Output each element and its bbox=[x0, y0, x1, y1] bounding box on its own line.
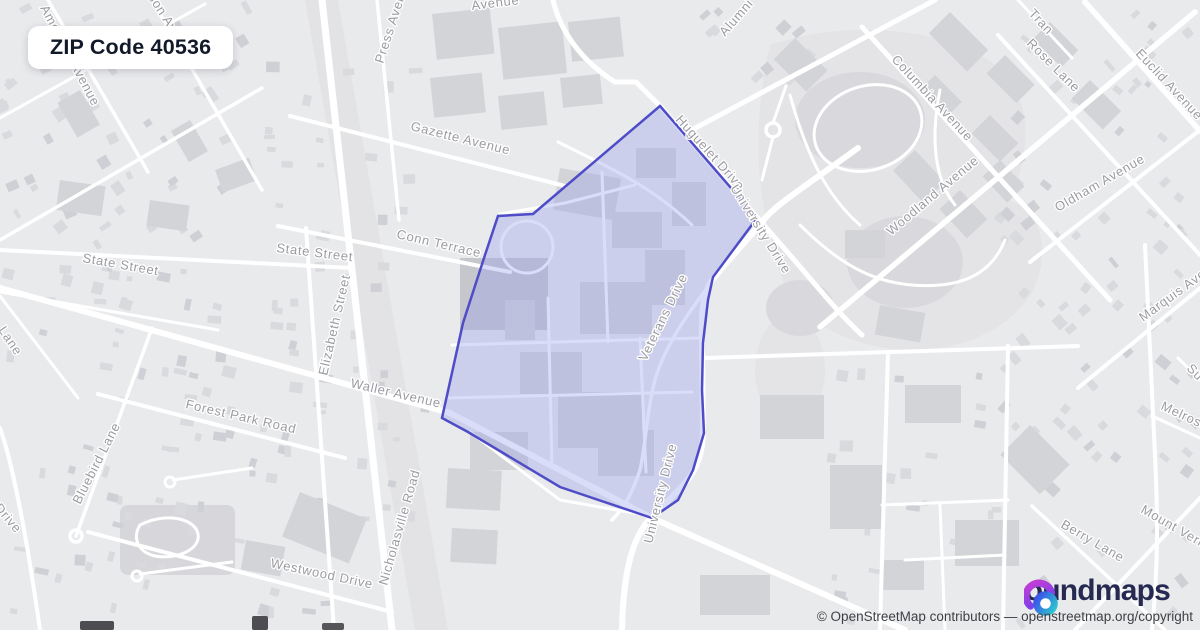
map-share-image: American AvenueSimpson AvenueAvenuePress… bbox=[0, 0, 1200, 630]
map-canvas: American AvenueSimpson AvenueAvenuePress… bbox=[0, 0, 1200, 630]
zip-card-title: ZIP Code 40536 bbox=[50, 35, 211, 59]
osm-attribution-text: © OpenStreetMap contributors — openstree… bbox=[817, 609, 1193, 624]
zip-card: ZIP Code 40536 bbox=[28, 26, 233, 69]
boundmaps-logo: oundmaps bbox=[1024, 576, 1170, 606]
osm-attribution: © OpenStreetMap contributors — openstree… bbox=[817, 609, 1193, 624]
